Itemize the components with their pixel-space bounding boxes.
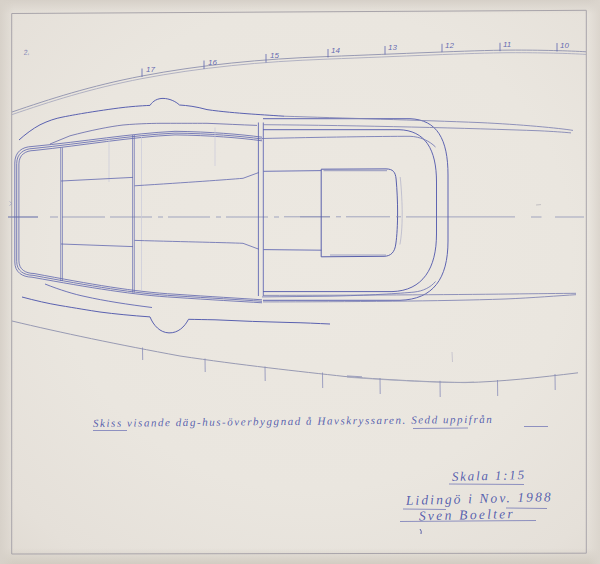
svg-text:13: 13 (388, 43, 397, 52)
svg-text:16: 16 (208, 58, 217, 67)
svg-text:Skala 1:15: Skala 1:15 (452, 467, 526, 484)
svg-text:12: 12 (445, 41, 454, 50)
svg-text:14: 14 (331, 46, 340, 55)
svg-text:15: 15 (270, 51, 279, 60)
svg-text:10: 10 (560, 41, 569, 50)
svg-text:2,: 2, (22, 48, 30, 56)
svg-text:17: 17 (146, 65, 155, 74)
svg-text:11: 11 (503, 40, 511, 49)
